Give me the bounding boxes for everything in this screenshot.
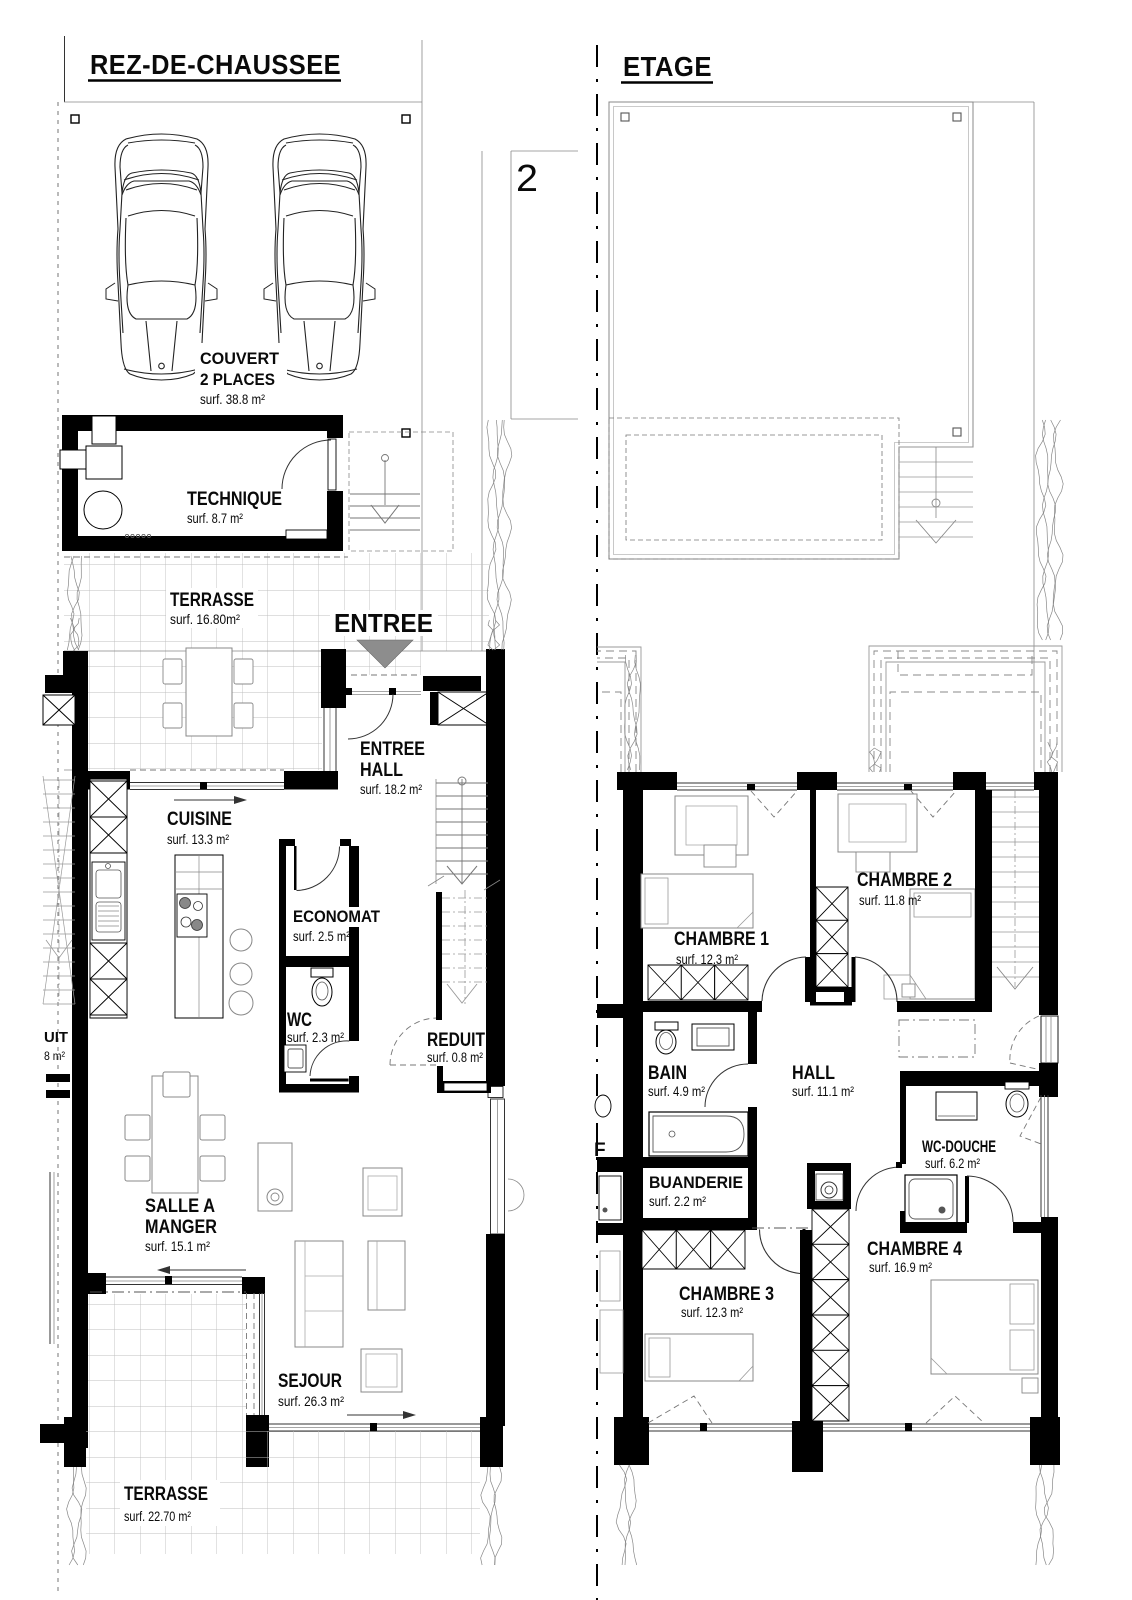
svg-text:surf. 11.8 m²: surf. 11.8 m² <box>859 893 921 908</box>
svg-text:surf. 26.3 m²: surf. 26.3 m² <box>278 1394 344 1409</box>
svg-text:surf. 16.9 m²: surf. 16.9 m² <box>869 1260 932 1275</box>
svg-text:ECONOMAT: ECONOMAT <box>293 907 381 926</box>
svg-text:CUISINE: CUISINE <box>167 809 232 830</box>
svg-text:SALLE A: SALLE A <box>145 1196 215 1217</box>
svg-text:surf. 22.70 m²: surf. 22.70 m² <box>124 1509 191 1524</box>
svg-text:F: F <box>594 1140 606 1161</box>
svg-text:TECHNIQUE: TECHNIQUE <box>187 489 282 510</box>
svg-text:HALL: HALL <box>792 1063 835 1084</box>
svg-text:surf. 38.8 m²: surf. 38.8 m² <box>200 392 265 407</box>
svg-text:surf. 13.3 m²: surf. 13.3 m² <box>167 832 229 847</box>
svg-text:surf. 2.5 m²: surf. 2.5 m² <box>293 929 350 944</box>
svg-text:BAIN: BAIN <box>648 1063 687 1084</box>
svg-text:REZ-DE-CHAUSSEE: REZ-DE-CHAUSSEE <box>90 49 341 80</box>
svg-text:WC: WC <box>287 1010 312 1031</box>
svg-text:REDUIT: REDUIT <box>427 1030 485 1051</box>
svg-text:CHAMBRE 1: CHAMBRE 1 <box>674 929 769 950</box>
svg-text:ENTREE​: ENTREE​ <box>360 739 425 760</box>
svg-text:surf. 4.9 m²: surf. 4.9 m² <box>648 1084 705 1099</box>
svg-text:surf. 15.1 m²: surf. 15.1 m² <box>145 1239 210 1254</box>
svg-text:CHAMBRE 2: CHAMBRE 2 <box>857 870 952 891</box>
svg-text:CHAMBRE 3: CHAMBRE 3 <box>679 1284 774 1305</box>
svg-text:8 m²: 8 m² <box>44 1049 65 1063</box>
svg-text:HALL: HALL <box>360 760 403 781</box>
svg-text:surf. 6.2 m²: surf. 6.2 m² <box>925 1156 980 1171</box>
svg-text:ENTREE: ENTREE <box>334 608 433 638</box>
svg-text:surf. 0.8 m²: surf. 0.8 m² <box>427 1050 483 1065</box>
svg-text:surf. 18.2 m²: surf. 18.2 m² <box>360 782 422 797</box>
svg-text:CHAMBRE 4: CHAMBRE 4 <box>867 1239 962 1260</box>
svg-text:2 PLACES: 2 PLACES <box>200 370 275 389</box>
svg-text:surf. 12.3 m²: surf. 12.3 m² <box>681 1305 743 1320</box>
svg-text:WC-DOUCHE: WC-DOUCHE <box>922 1137 996 1156</box>
svg-text:2: 2 <box>516 158 538 200</box>
svg-text:surf. 8.7 m²: surf. 8.7 m² <box>187 511 243 526</box>
svg-text:ETAGE: ETAGE <box>623 51 712 82</box>
svg-text:TERRASSE: TERRASSE <box>170 590 254 611</box>
svg-text:surf. 16.80m²: surf. 16.80m² <box>170 612 240 627</box>
svg-text:COUVERT: COUVERT <box>200 349 280 368</box>
svg-text:TERRASSE: TERRASSE <box>124 1484 208 1505</box>
svg-text:UIT: UIT <box>44 1029 68 1046</box>
svg-text:MANGER: MANGER <box>145 1217 217 1238</box>
svg-text:surf. 2.2 m²: surf. 2.2 m² <box>649 1194 706 1209</box>
svg-text:surf. 11.1 m²: surf. 11.1 m² <box>792 1084 854 1099</box>
svg-text:SEJOUR: SEJOUR <box>278 1371 342 1392</box>
svg-text:BUANDERIE: BUANDERIE <box>649 1173 743 1192</box>
